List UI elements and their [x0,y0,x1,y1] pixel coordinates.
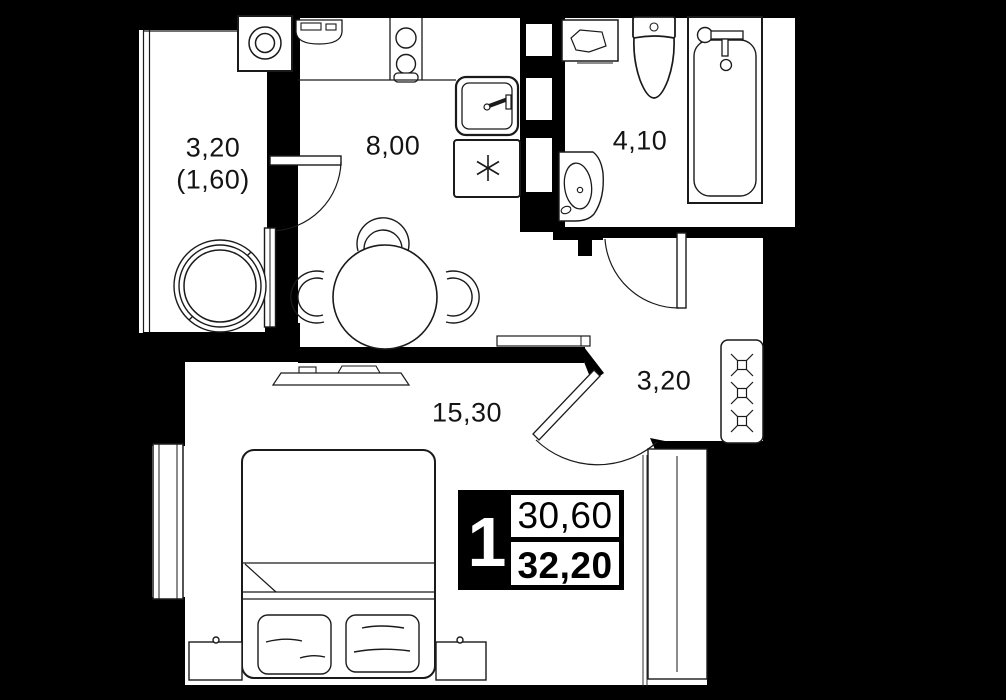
room-count-badge: 1 [463,495,511,589]
living-area-value: 30,60 [511,495,619,542]
kitchen-area-label: 8,00 [366,131,421,162]
doorway-frame-icon [497,336,590,346]
washbasin-icon [559,152,603,221]
wall-living-left-upper [150,362,185,446]
bathtub-icon [688,17,762,203]
wardrobe-hanger-icon [721,340,763,443]
wall-living-bottom [150,685,722,700]
wall-bathroom-bottom-left [553,227,603,240]
wall-door-jamb-stub [578,240,592,256]
loggia-reduced-area-label: (1,60) [176,165,250,196]
refrigerator-asterisk-icon [454,140,520,197]
washing-machine-icon [238,16,292,71]
total-area-value: 32,20 [511,542,619,589]
wall-hallway-right [763,235,800,460]
kitchen-sink-icon [456,77,518,135]
cooktop-icon [296,20,342,44]
built-in-closet-icon [643,449,707,687]
area-values: 30,60 32,20 [511,495,619,589]
room-kitchen-passage [520,232,585,347]
floor-plan: 3,20 (1,60) 8,00 4,10 3,20 15,30 1 30,60… [0,0,1006,700]
dining-table-icon [333,245,437,349]
armchair-icon [174,240,266,332]
living-window-icon [153,444,183,599]
hallway-area-label: 3,20 [637,366,692,397]
living-area-label: 15,30 [432,398,502,429]
wall-kitchen-living [298,347,584,363]
shelf-icon [562,20,618,63]
floor-plan-drawing [0,0,1006,700]
loggia-window-icon [265,228,276,327]
bathroom-area-label: 4,10 [613,126,668,157]
apartment-info-badge: 1 30,60 32,20 [458,490,624,590]
loggia-area-label: 3,20 [186,133,241,164]
vent-shaft-niches [526,24,552,192]
wall-living-right [707,443,722,690]
wall-living-left-lower [150,597,185,690]
bed-icon [242,450,435,678]
wall-loggia-bottom [143,332,300,362]
